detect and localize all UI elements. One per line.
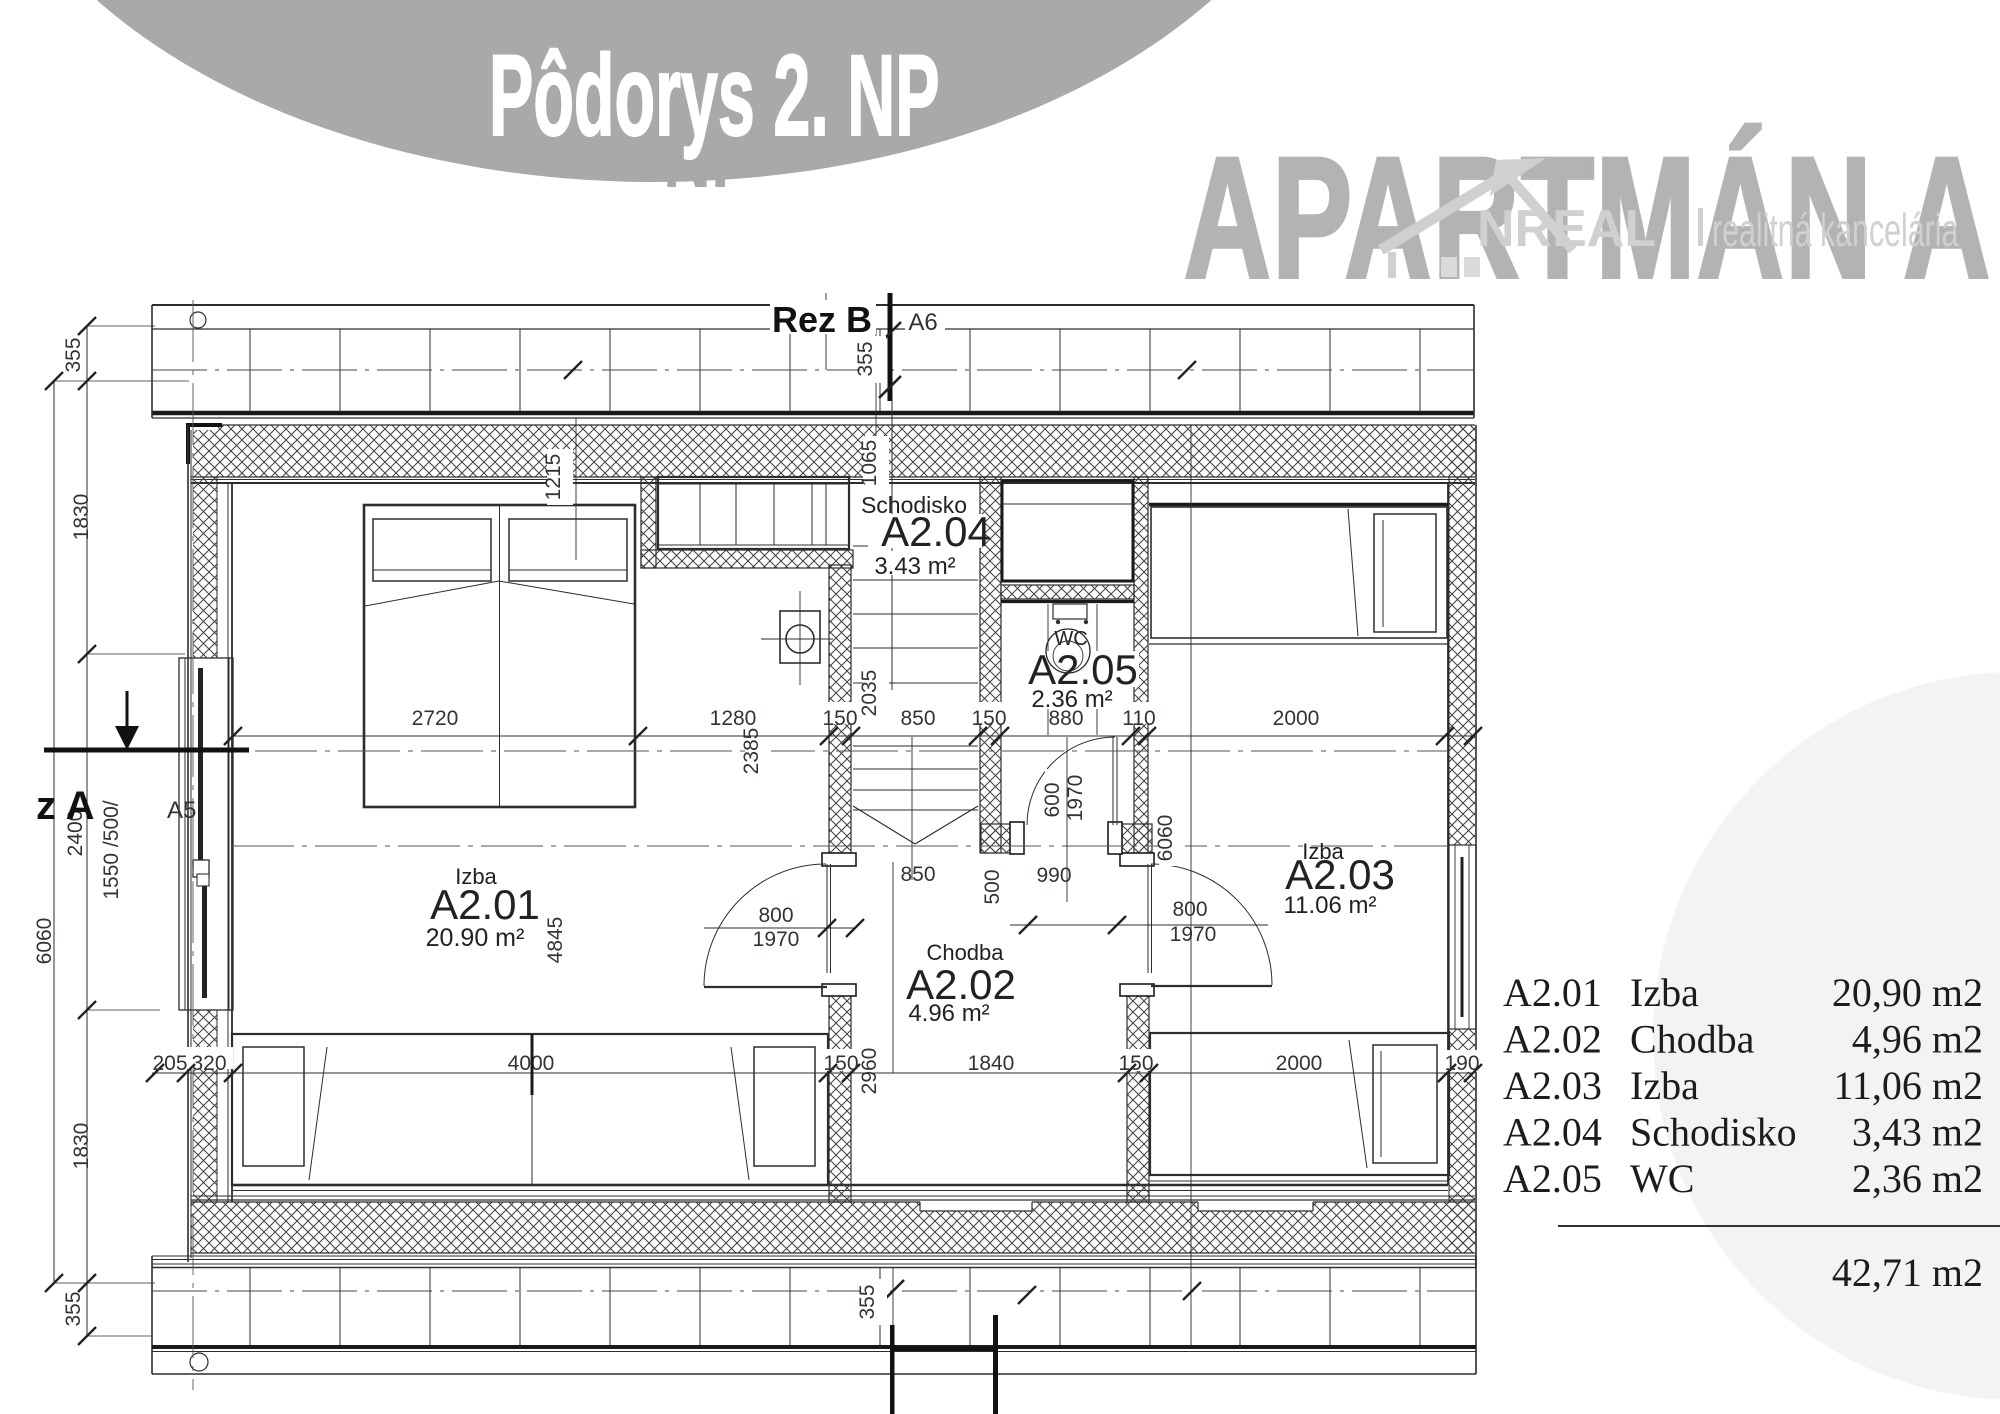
svg-text:A2.02: A2.02 [1503,1017,1602,1062]
svg-text:355: 355 [856,1284,879,1319]
svg-text:110: 110 [1122,707,1155,730]
svg-text:150: 150 [822,707,857,730]
svg-text:6060: 6060 [1154,815,1177,862]
svg-text:Schodisko: Schodisko [1630,1110,1797,1155]
svg-text:z A: z A [36,784,95,828]
svg-text:190: 190 [1444,1052,1479,1075]
svg-text:850: 850 [900,707,935,730]
svg-text:Izba: Izba [1630,970,1699,1015]
svg-text:4.96 m²: 4.96 m² [908,1000,989,1027]
svg-text:800: 800 [758,904,793,927]
svg-text:1840: 1840 [968,1052,1015,1075]
svg-text:1280: 1280 [710,707,757,730]
svg-text:A2.04: A2.04 [881,508,991,555]
svg-text:1830: 1830 [70,1123,93,1170]
svg-text:1970: 1970 [1170,923,1217,946]
svg-text:850: 850 [900,863,935,886]
svg-text:320: 320 [191,1052,226,1075]
svg-text:Rez B: Rez B [772,299,872,340]
svg-text:2385: 2385 [740,728,763,775]
svg-text:NREAL: NREAL [1477,200,1656,258]
svg-text:1970: 1970 [753,928,800,951]
svg-text:355: 355 [62,337,85,372]
svg-text:A2.05: A2.05 [1503,1156,1602,1201]
svg-text:A2.01: A2.01 [430,881,540,928]
svg-text:1830: 1830 [70,494,93,541]
svg-text:2,36 m2: 2,36 m2 [1852,1156,1983,1201]
svg-text:42,71 m2: 42,71 m2 [1832,1250,1983,1295]
svg-text:A2.01: A2.01 [1503,970,1602,1015]
svg-text:2035: 2035 [858,670,881,717]
svg-text:A5: A5 [167,797,196,824]
svg-text:Pôdorys 2. NP: Pôdorys 2. NP [489,31,940,160]
svg-text:20,90 m2: 20,90 m2 [1832,970,1983,1015]
svg-text:2960: 2960 [858,1048,881,1095]
svg-text:150: 150 [823,1052,858,1075]
svg-text:A2.03: A2.03 [1285,851,1395,898]
svg-text:1065: 1065 [858,440,881,487]
svg-text:3,43 m2: 3,43 m2 [1852,1110,1983,1155]
svg-text:A2.03: A2.03 [1503,1063,1602,1108]
svg-text:1215: 1215 [542,454,565,501]
svg-text:1550 /500/: 1550 /500/ [100,800,123,899]
svg-text:2000: 2000 [1276,1052,1323,1075]
svg-text:205: 205 [152,1052,187,1075]
svg-text:600: 600 [1041,782,1064,817]
svg-text:4845: 4845 [544,917,567,964]
svg-text:150: 150 [1118,1052,1153,1075]
svg-text:355: 355 [854,341,877,376]
svg-text:A2.04: A2.04 [1503,1110,1602,1155]
svg-text:Izba: Izba [1630,1063,1699,1108]
svg-text:WC: WC [1630,1156,1694,1201]
svg-text:11,06 m2: 11,06 m2 [1833,1063,1983,1108]
svg-text:3.43 m²: 3.43 m² [874,553,955,580]
svg-text:990: 990 [1036,864,1071,887]
svg-text:4,96 m2: 4,96 m2 [1852,1017,1983,1062]
svg-text:800: 800 [1172,898,1207,921]
svg-text:500: 500 [981,869,1004,904]
svg-text:1970: 1970 [1064,775,1087,822]
svg-text:11.06 m²: 11.06 m² [1284,892,1377,919]
svg-text:2.36 m²: 2.36 m² [1031,686,1112,713]
svg-text:A6: A6 [908,309,937,336]
svg-text:realitná kancelária: realitná kancelária [1712,206,1959,257]
svg-text:2720: 2720 [412,707,459,730]
svg-text:6060: 6060 [33,918,56,965]
svg-text:Chodba: Chodba [1630,1017,1755,1062]
svg-text:20.90 m²: 20.90 m² [426,924,525,952]
svg-text:2000: 2000 [1273,707,1320,730]
svg-text:150: 150 [971,707,1006,730]
svg-text:355: 355 [62,1291,85,1326]
